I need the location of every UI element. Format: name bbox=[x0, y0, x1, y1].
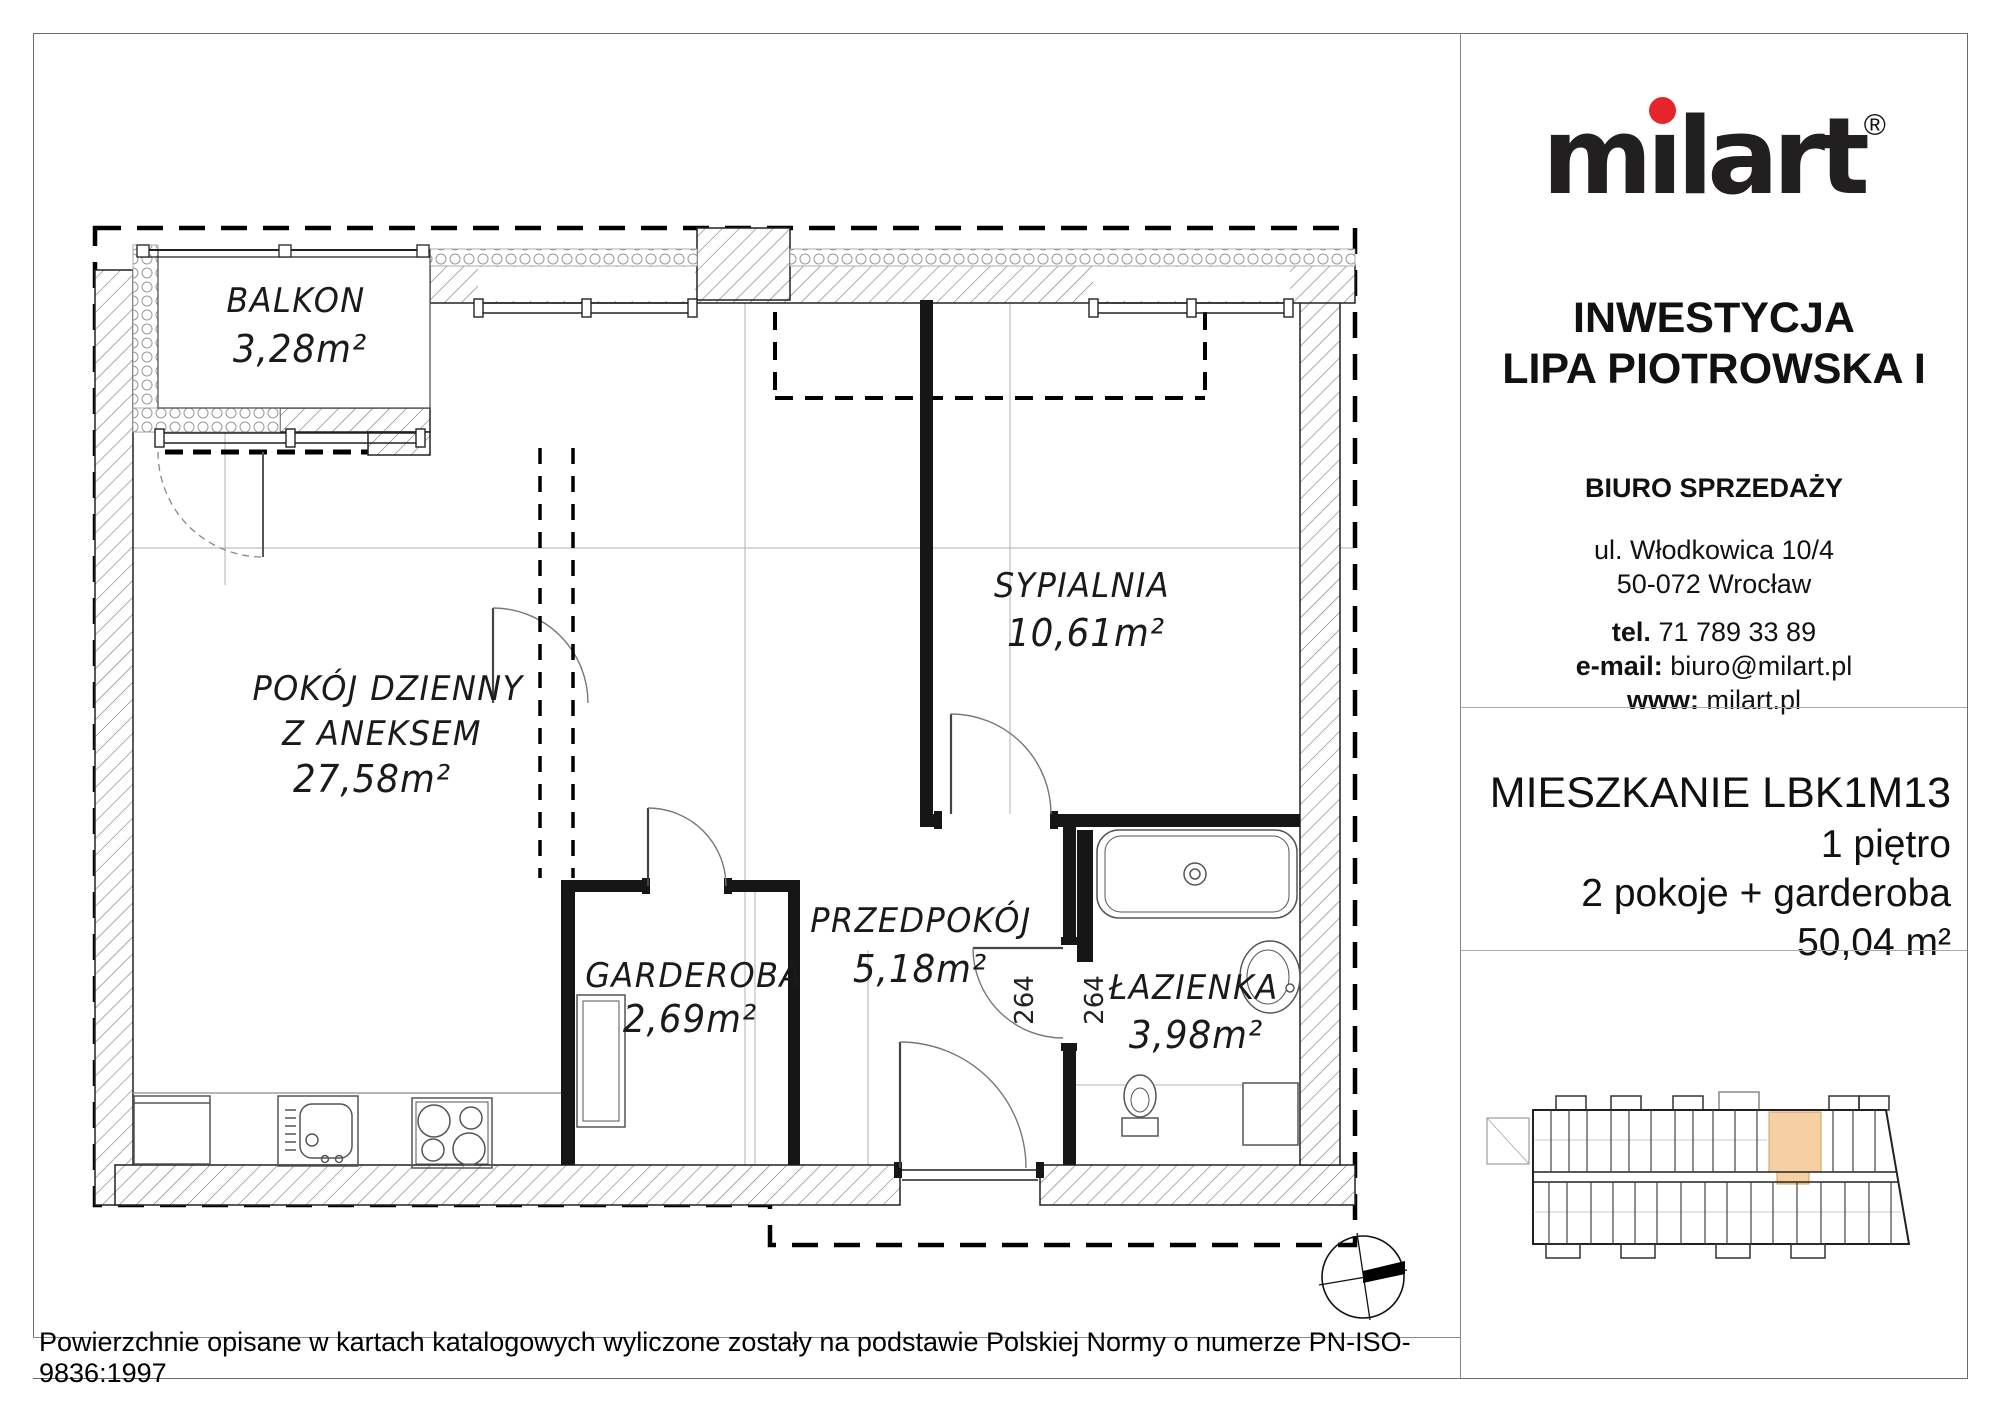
panel-section-divider-1 bbox=[1461, 707, 1967, 708]
catalog-page: 264 264 BALKON 3,28m² POKÓJ DZIENNY Z AN… bbox=[0, 0, 2000, 1414]
panel-section-divider-2 bbox=[1461, 950, 1967, 951]
page-frame bbox=[33, 33, 1968, 1379]
disclaimer-text: Powierzchnie opisane w kartach katalogow… bbox=[39, 1327, 1460, 1389]
panel-divider bbox=[1460, 33, 1461, 1378]
disclaimer-bar: Powierzchnie opisane w kartach katalogow… bbox=[33, 1337, 1460, 1378]
